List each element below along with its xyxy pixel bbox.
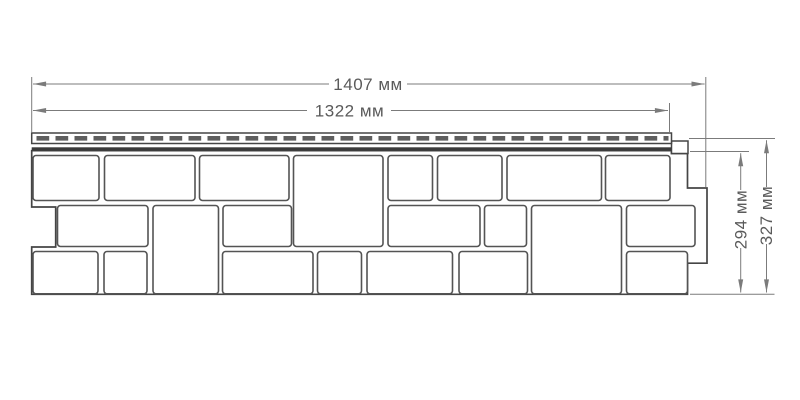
stone-block [318, 252, 362, 294]
stone-block [200, 156, 290, 201]
stone-block [507, 156, 602, 201]
stone-block [388, 156, 433, 201]
stone-block [33, 156, 99, 201]
stone-block [104, 252, 147, 294]
stone-block [105, 156, 196, 201]
drawing-canvas: 1407 мм 1322 мм 294 мм 327 мм [0, 0, 800, 400]
stone-block [223, 206, 292, 247]
stone-block [459, 252, 528, 294]
stone-block [367, 252, 453, 294]
dimension-label-panel-width: 1322 мм [315, 102, 384, 121]
dimension-label-panel-height: 294 мм [732, 190, 751, 249]
stone-block [58, 206, 149, 247]
corner-tab [672, 141, 689, 154]
stone-block [33, 252, 98, 294]
stone-block [485, 206, 527, 247]
siding-panel-technical-drawing: 1407 мм 1322 мм 294 мм 327 мм [0, 0, 800, 400]
dimension-label-total-height: 327 мм [757, 186, 776, 245]
dimension-label-total-width: 1407 мм [333, 75, 402, 94]
stone-block [627, 252, 688, 294]
stone-block [532, 206, 622, 294]
stone-block [606, 156, 671, 201]
dimension-panel-width: 1322 мм [33, 102, 670, 133]
stone-block [388, 206, 480, 247]
hem-band [32, 147, 672, 150]
stone-block [627, 206, 696, 247]
stone-block [223, 252, 314, 294]
stone-block [294, 156, 384, 247]
stone-block [438, 156, 503, 201]
stone-block [153, 206, 219, 294]
